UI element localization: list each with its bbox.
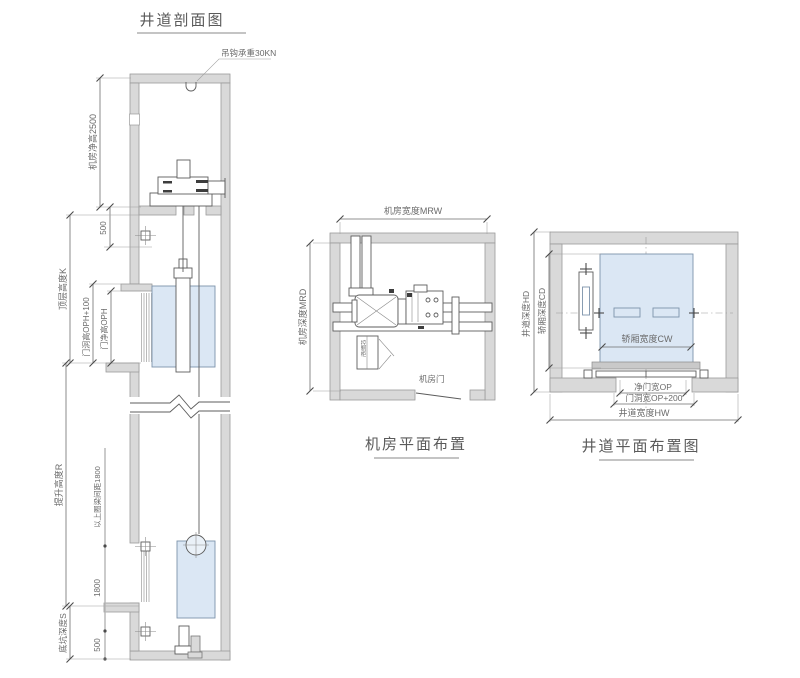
machine-room-door-label: 机房门 — [419, 374, 445, 384]
counterweight-plan — [579, 263, 593, 339]
dim-car-width-label: 轿厢宽度CW — [622, 333, 673, 344]
shaft-plan-title: 井道平面布置图 — [581, 438, 700, 455]
pit-buffers — [175, 626, 202, 658]
svg-text:底坑深度S: 底坑深度S — [58, 613, 68, 653]
lifting-hook: 吊钩承重30KN — [186, 48, 276, 91]
shaft-section-view: 井道剖面图 — [53, 12, 276, 663]
counterweight-section — [177, 532, 215, 618]
machine-room-door-leaf — [416, 393, 461, 399]
break-line — [128, 395, 232, 418]
cable-trunking — [349, 236, 373, 296]
section-title: 井道剖面图 — [139, 12, 224, 29]
control-cabinet-label: 控制柜 — [360, 339, 367, 358]
svg-text:门净高OPH: 门净高OPH — [99, 308, 109, 350]
elevator-car-plan: 轿厢宽度CW — [594, 254, 699, 368]
svg-text:门洞高OPH+100: 门洞高OPH+100 — [81, 297, 91, 357]
svg-text:机房宽度MRW: 机房宽度MRW — [384, 205, 443, 216]
svg-text:机房净高2500: 机房净高2500 — [87, 114, 98, 170]
control-cabinet: 控制柜 — [357, 336, 394, 369]
hook-load-label: 吊钩承重30KN — [221, 48, 276, 58]
elevator-car-section — [152, 259, 215, 372]
svg-text:机房深度MRD: 机房深度MRD — [297, 288, 308, 345]
drawing-sheet: 井道剖面图 — [0, 0, 800, 678]
svg-text:提升高度R: 提升高度R — [53, 463, 64, 506]
machine-room-slab — [139, 206, 221, 215]
svg-text:门洞宽OP+200: 门洞宽OP+200 — [626, 393, 683, 403]
svg-text:500: 500 — [93, 638, 102, 652]
svg-text:轿厢深度CD: 轿厢深度CD — [537, 288, 547, 334]
svg-text:顶层高度K: 顶层高度K — [57, 268, 68, 310]
shaft-plan-view: 轿厢宽度CW 井道深度HD — [521, 229, 742, 461]
dim-ring-beam-spacing: 以上圈梁间距1800 1800 500 — [93, 448, 107, 661]
traction-machine-section — [150, 160, 225, 206]
dim-door-clear-height: 门净高OPH — [99, 288, 141, 367]
elevator-drawing: 井道剖面图 — [0, 0, 800, 678]
svg-text:井道宽度HW: 井道宽度HW — [619, 407, 670, 418]
machine-room-door: 机房门 — [416, 374, 461, 399]
dim-machine-room-width: 机房宽度MRW — [337, 205, 491, 234]
top-landing-door — [142, 293, 152, 362]
machine-room-plan-view: 控制柜 机房门 机房宽度MRW 机房深度MRD 机房平面布置 — [297, 205, 495, 458]
svg-text:1800: 1800 — [93, 579, 102, 597]
svg-text:以上圈梁间距1800: 以上圈梁间距1800 — [93, 466, 102, 528]
svg-text:井道深度HD: 井道深度HD — [521, 291, 531, 337]
svg-text:500: 500 — [99, 221, 108, 235]
machine-room-title: 机房平面布置 — [365, 436, 467, 453]
svg-text:净门宽OP: 净门宽OP — [634, 382, 672, 392]
